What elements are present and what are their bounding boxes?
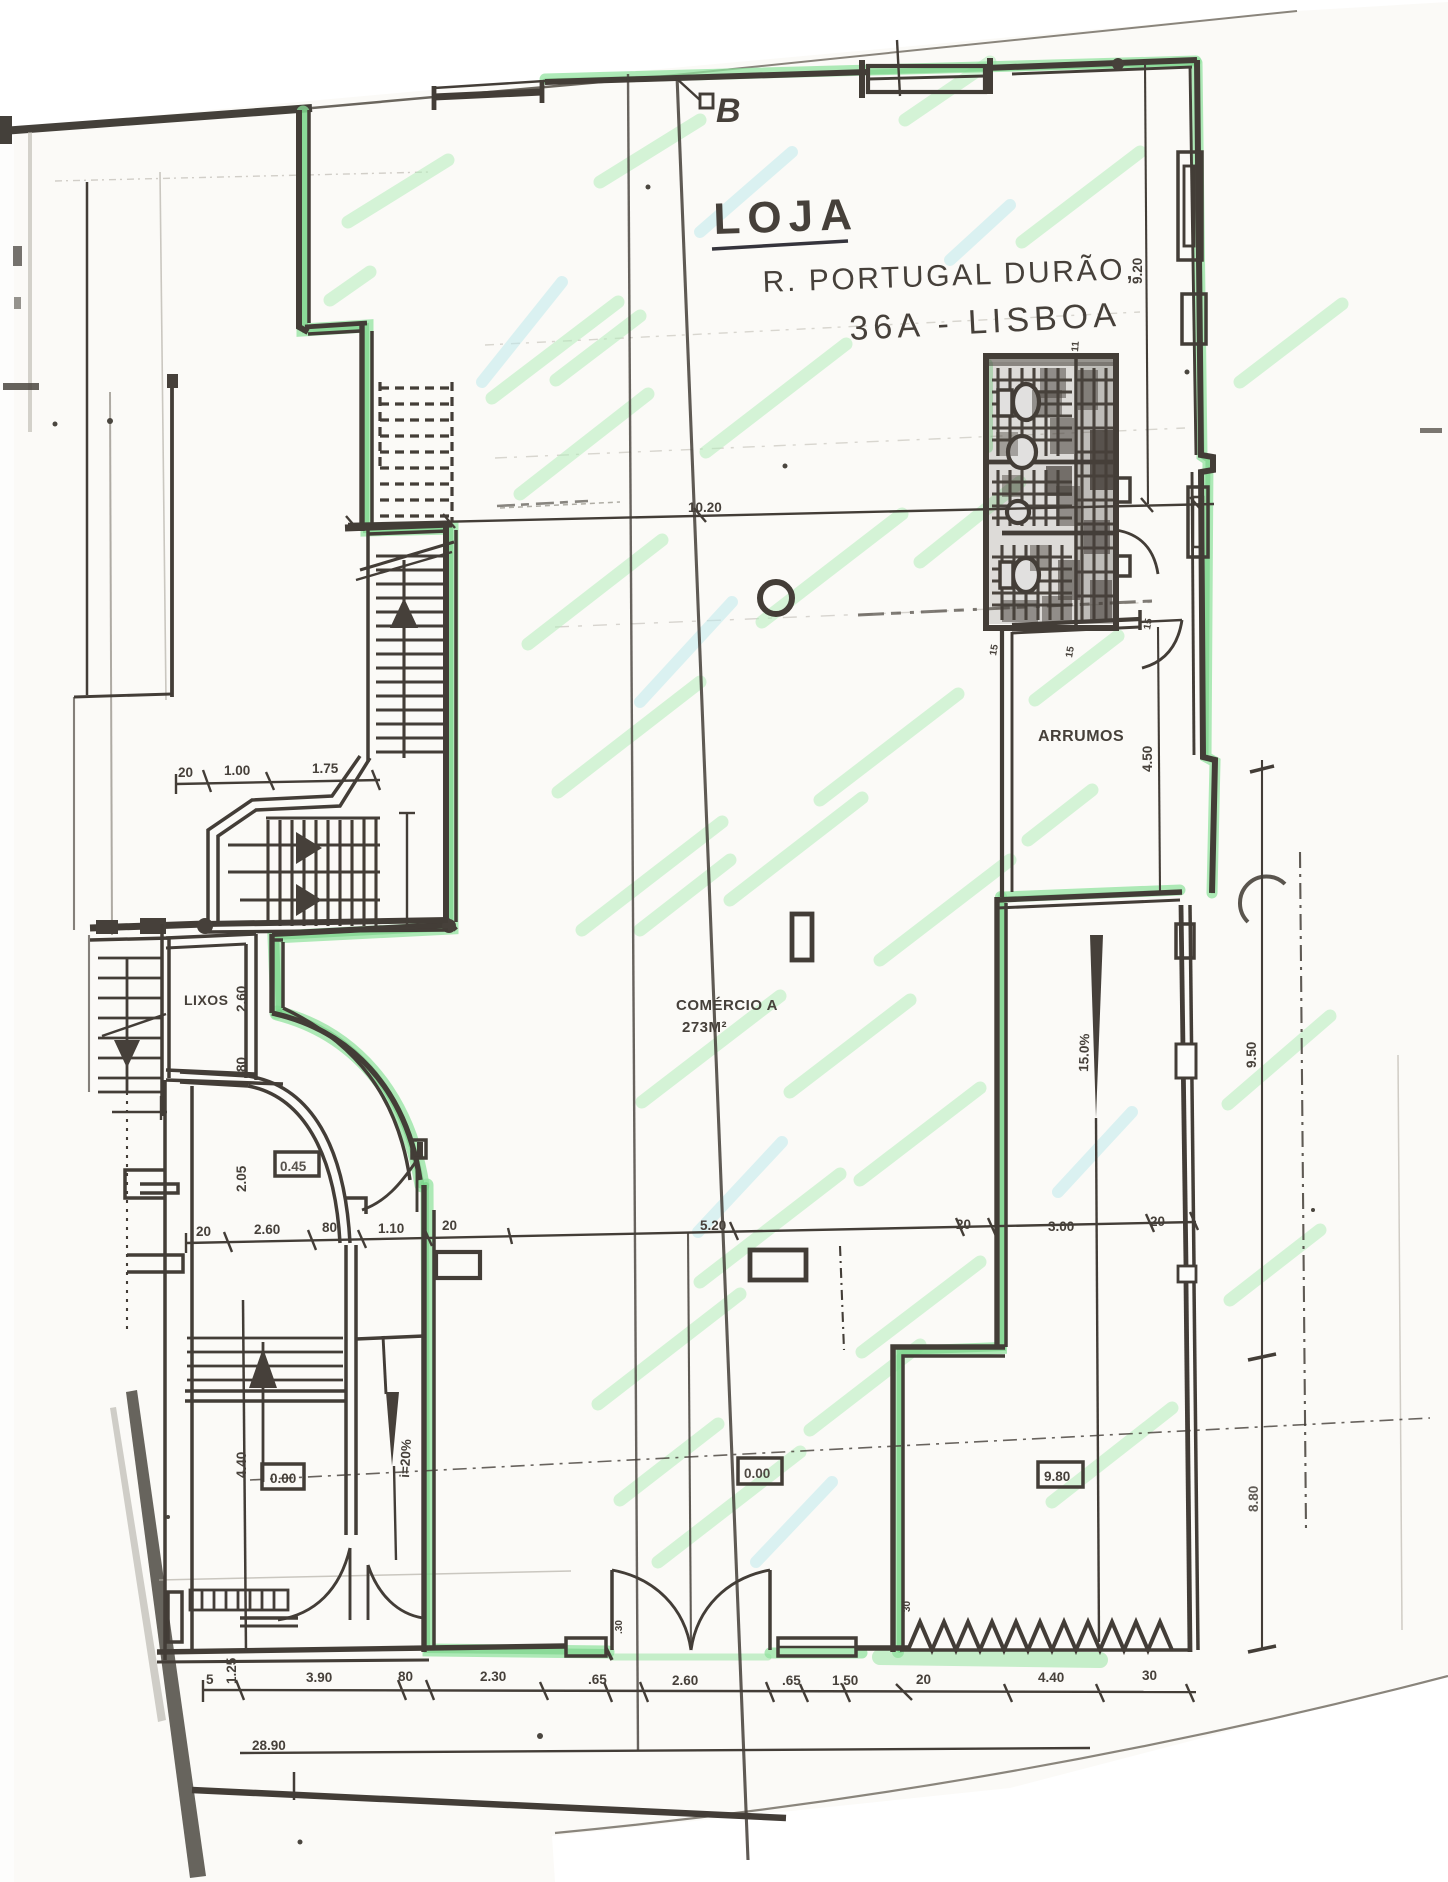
svg-text:9.20: 9.20 — [1130, 258, 1145, 284]
svg-text:3.90: 3.90 — [306, 1670, 332, 1685]
svg-text:20: 20 — [956, 1217, 971, 1232]
svg-text:20: 20 — [1150, 1214, 1165, 1229]
svg-text:20: 20 — [916, 1672, 931, 1687]
svg-text:20: 20 — [196, 1224, 211, 1239]
svg-text:4.50: 4.50 — [1140, 746, 1155, 772]
svg-text:.65: .65 — [588, 1672, 607, 1687]
svg-text:20: 20 — [442, 1218, 457, 1233]
svg-text:4.40: 4.40 — [234, 1452, 249, 1478]
svg-text:2.30: 2.30 — [480, 1669, 506, 1684]
svg-text:28.90: 28.90 — [252, 1738, 286, 1753]
svg-text:30: 30 — [1142, 1668, 1157, 1683]
svg-text:.30: .30 — [614, 1620, 625, 1634]
svg-text:ARRUMOS: ARRUMOS — [1038, 728, 1124, 745]
svg-text:2.60: 2.60 — [254, 1222, 280, 1237]
svg-text:i=20%: i=20% — [397, 1439, 414, 1478]
svg-text:3.00: 3.00 — [1048, 1219, 1074, 1234]
svg-text:80: 80 — [234, 1057, 249, 1072]
svg-text:30: 30 — [902, 1600, 913, 1612]
svg-text:20: 20 — [178, 765, 193, 780]
svg-text:1.50: 1.50 — [832, 1673, 858, 1688]
svg-text:1.25: 1.25 — [224, 1657, 239, 1684]
svg-text:LOJA: LOJA — [713, 190, 860, 244]
svg-text:5.20: 5.20 — [700, 1218, 726, 1233]
svg-text:1.00: 1.00 — [224, 763, 250, 778]
svg-text:2.60: 2.60 — [234, 986, 249, 1012]
svg-text:80: 80 — [398, 1669, 413, 1684]
svg-text:0.00: 0.00 — [270, 1471, 296, 1486]
svg-text:11: 11 — [1070, 340, 1082, 352]
svg-text:273M²: 273M² — [682, 1019, 727, 1036]
svg-text:LIXOS: LIXOS — [184, 992, 229, 1008]
svg-text:4.40: 4.40 — [1038, 1670, 1064, 1685]
svg-text:0.45: 0.45 — [280, 1159, 307, 1174]
svg-text:1.75: 1.75 — [312, 761, 339, 776]
svg-text:0.00: 0.00 — [744, 1466, 770, 1481]
svg-text:5: 5 — [206, 1672, 214, 1687]
svg-text:1.10: 1.10 — [378, 1221, 404, 1236]
svg-text:B: B — [716, 92, 741, 130]
svg-text:10.20: 10.20 — [688, 500, 722, 515]
svg-text:9.50: 9.50 — [1244, 1042, 1259, 1068]
svg-text:2.60: 2.60 — [672, 1673, 698, 1688]
svg-text:9.80: 9.80 — [1044, 1469, 1070, 1484]
svg-text:80: 80 — [322, 1220, 337, 1235]
svg-text:.65: .65 — [782, 1673, 801, 1688]
svg-text:8.80: 8.80 — [1246, 1486, 1261, 1512]
svg-text:2.05: 2.05 — [234, 1165, 249, 1192]
svg-text:COMÉRCIO A: COMÉRCIO A — [676, 997, 778, 1014]
svg-text:15.0%: 15.0% — [1076, 1033, 1092, 1072]
